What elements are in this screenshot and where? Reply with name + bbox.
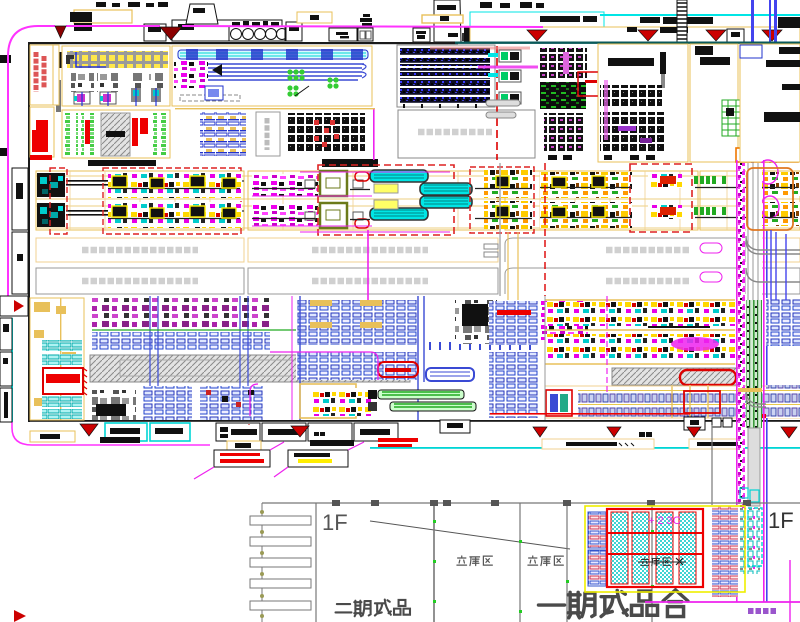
svg-text:+ 2 3C: + 2 3C xyxy=(648,515,681,527)
svg-text:1F: 1F xyxy=(322,510,348,535)
svg-text:1F: 1F xyxy=(768,508,794,533)
